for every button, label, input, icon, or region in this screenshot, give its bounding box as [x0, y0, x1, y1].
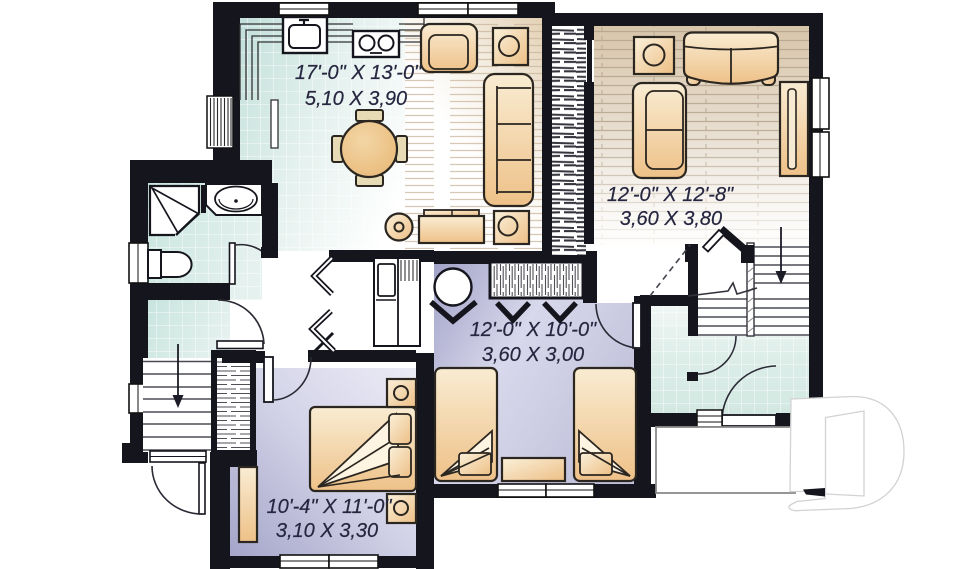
- svg-text:5,10 X 3,90: 5,10 X 3,90: [305, 88, 407, 110]
- svg-text:3,60 X 3,00: 3,60 X 3,00: [482, 344, 584, 366]
- svg-text:12'-0" X 10'-0": 12'-0" X 10'-0": [470, 319, 597, 341]
- svg-text:3,10 X 3,30: 3,10 X 3,30: [276, 520, 378, 542]
- svg-text:10'-4" X 11'-0": 10'-4" X 11'-0": [267, 496, 393, 518]
- svg-text:17'-0" X 13'-0": 17'-0" X 13'-0": [295, 62, 422, 84]
- svg-text:3,60 X 3,80: 3,60 X 3,80: [620, 208, 722, 230]
- svg-text:12'-0" X 12'-8": 12'-0" X 12'-8": [607, 184, 734, 206]
